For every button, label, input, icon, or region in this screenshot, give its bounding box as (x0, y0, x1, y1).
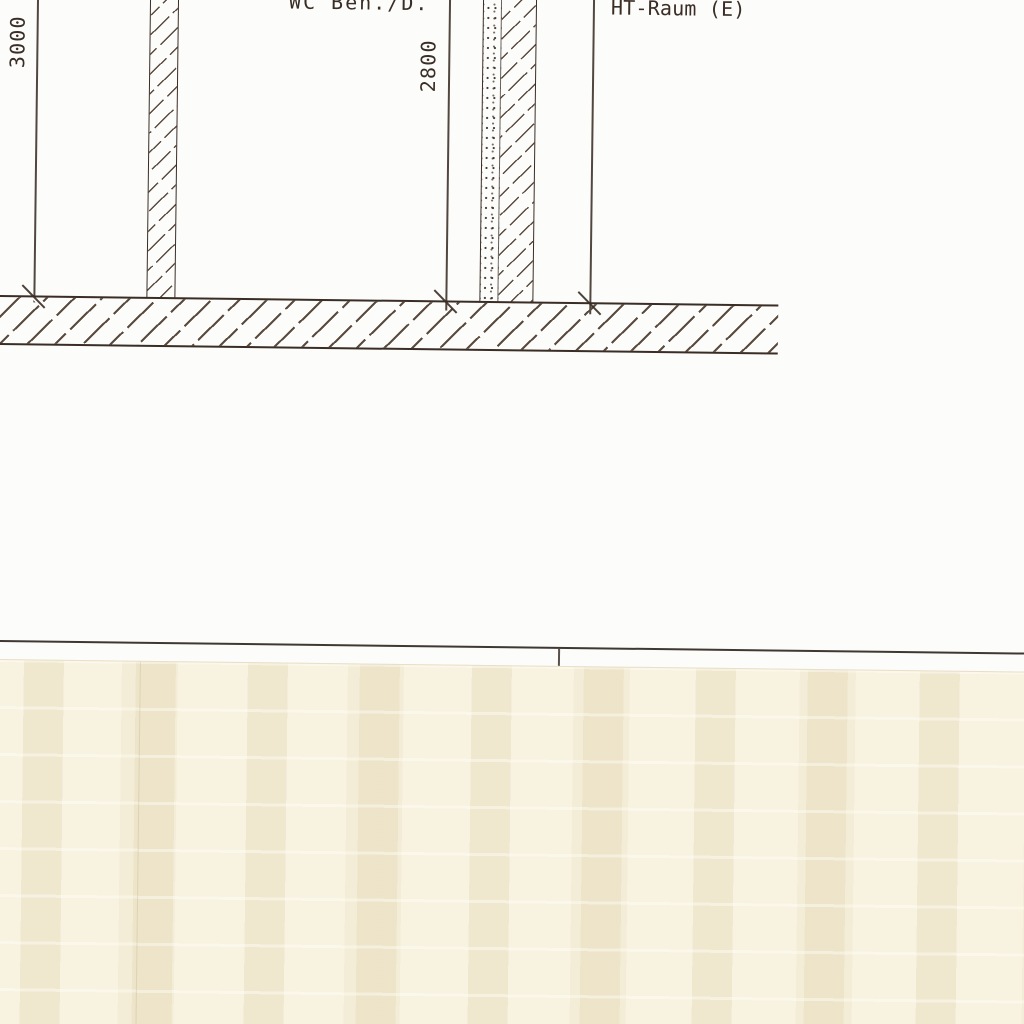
cardboard-crease (134, 662, 141, 1024)
dimension-line-right (589, 0, 595, 314)
dimension-label-2800: 2800 (418, 39, 439, 92)
dimension-line-2800 (445, 0, 451, 310)
wall-section-middle (479, 0, 537, 303)
cardboard-background (0, 658, 1024, 1024)
wall-section-left (146, 0, 179, 298)
drawing-sheet: 3000 WC Beh./D. 2800 HT-Raum (E) (0, 0, 1024, 1024)
dimension-line-3000 (33, 0, 39, 302)
dimension-label-3000: 3000 (7, 15, 28, 68)
scanned-architectural-drawing: 3000 WC Beh./D. 2800 HT-Raum (E) (0, 0, 1024, 1024)
room-label-wc-beh-d: WC Beh./D. (289, 0, 430, 13)
room-label-ht-raum: HT-Raum (E) (611, 0, 746, 19)
paper-bottom-edge (0, 639, 1024, 655)
floor-slab (0, 295, 778, 355)
masonry-layer (498, 0, 537, 303)
